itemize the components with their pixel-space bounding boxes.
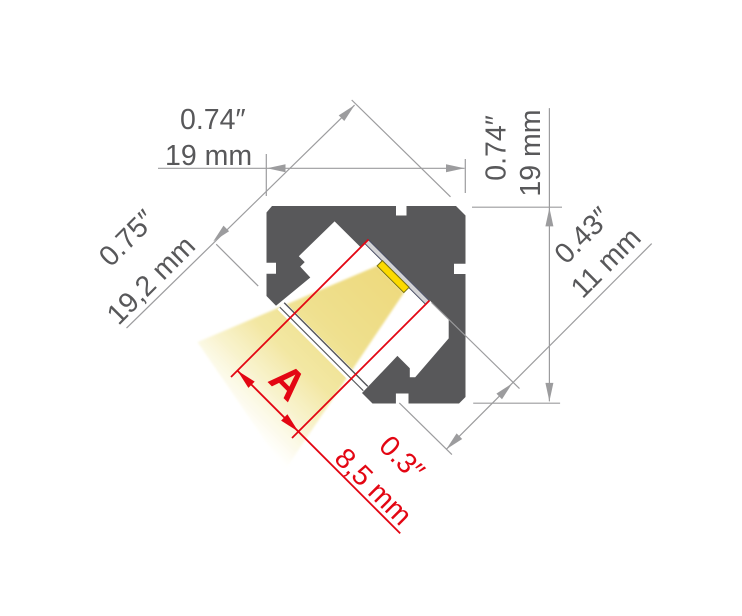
svg-text:19 mm: 19 mm <box>515 109 547 196</box>
svg-text:0.74″: 0.74″ <box>481 115 513 181</box>
svg-text:19 mm: 19 mm <box>165 140 252 172</box>
svg-text:0.74″: 0.74″ <box>180 104 246 136</box>
